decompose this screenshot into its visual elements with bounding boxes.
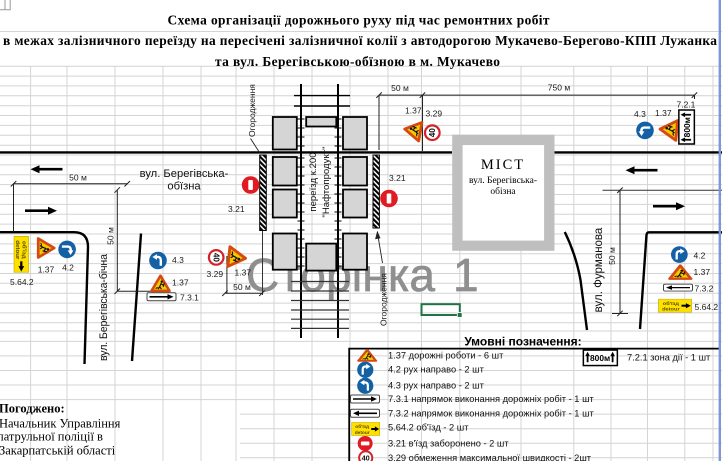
svg-text:3.21: 3.21	[389, 173, 406, 183]
svg-text:Схема організації дорожнього р: Схема організації дорожнього руху під ча…	[168, 13, 550, 28]
svg-text:50 м: 50 м	[69, 173, 87, 183]
svg-text:4.3 рух направо - 2 шт: 4.3 рух направо - 2 шт	[388, 381, 485, 391]
svg-text:вул. Берегівська-: вул. Берегівська-	[140, 168, 229, 180]
svg-text:вул. Фурманова: вул. Фурманова	[593, 227, 605, 312]
svg-text:750 м: 750 м	[548, 83, 571, 93]
svg-text:патрульної поліції в: патрульної поліції в	[0, 430, 103, 444]
svg-text:3.21: 3.21	[228, 204, 245, 214]
svg-text:Умовні позначення:: Умовні позначення:	[464, 335, 581, 349]
svg-text:Закарпатській області: Закарпатській області	[0, 444, 116, 458]
svg-text:"Нафтопродукт": "Нафтопродукт"	[321, 146, 332, 217]
svg-text:Огородження: Огородження	[379, 273, 389, 326]
svg-text:вул. Берегівська-: вул. Берегівська-	[469, 176, 537, 186]
svg-text:3.29 обмеження максимальної шв: 3.29 обмеження максимальної швидкості - …	[388, 453, 592, 461]
svg-text:1: 1	[453, 249, 479, 301]
svg-text:7.3.2 напрямок виконання дорож: 7.3.2 напрямок виконання дорожніх робіт …	[388, 409, 595, 419]
svg-text:7.3.1: 7.3.1	[180, 293, 199, 303]
svg-text:5.64.2: 5.64.2	[695, 302, 719, 312]
svg-text:1.37: 1.37	[655, 108, 672, 118]
svg-text:Погоджено:: Погоджено:	[0, 402, 65, 416]
svg-text:вул. Берегівська-бічна: вул. Берегівська-бічна	[98, 254, 110, 361]
svg-text:Огородження: Огородження	[247, 84, 257, 137]
svg-text:1.37: 1.37	[405, 106, 422, 116]
svg-text:4.2: 4.2	[62, 263, 74, 273]
svg-text:4.3: 4.3	[172, 255, 184, 265]
svg-text:4.2: 4.2	[694, 251, 706, 261]
svg-text:та вул. Берегівською-обїзною в: та вул. Берегівською-обїзною в м. Мукаче…	[215, 54, 500, 69]
svg-text:1.37: 1.37	[38, 265, 55, 275]
svg-text:50 м: 50 м	[106, 227, 116, 245]
svg-text:50 м: 50 м	[233, 282, 251, 292]
svg-text:МІСТ: МІСТ	[481, 157, 525, 173]
svg-text:50 м: 50 м	[607, 247, 617, 265]
svg-text:3.29: 3.29	[426, 109, 443, 119]
svg-text:в межах залізничного переїзду: в межах залізничного переїзду на пересіч…	[3, 33, 717, 48]
svg-text:3.29: 3.29	[207, 269, 224, 279]
svg-text:3.21 в'їзд заборонено - 2 шт: 3.21 в'їзд заборонено - 2 шт	[388, 439, 509, 449]
svg-text:7.2.1: 7.2.1	[677, 100, 696, 110]
svg-text:7.2.1 зона дії - 1 шт: 7.2.1 зона дії - 1 шт	[627, 353, 711, 363]
svg-text:обїзна: обїзна	[167, 181, 201, 193]
svg-text:Начальник Управління: Начальник Управління	[0, 417, 121, 431]
svg-text:обізна: обізна	[490, 186, 516, 197]
svg-text:5.64.2 об'їзд - 2 шт: 5.64.2 об'їзд - 2 шт	[388, 423, 469, 433]
svg-text:7.3.2: 7.3.2	[695, 284, 714, 294]
svg-text:4.3: 4.3	[634, 109, 646, 119]
svg-text:4.2 рух направо - 2 шт: 4.2 рух направо - 2 шт	[388, 365, 485, 375]
svg-text:1.37 дорожні роботи - 6 шт: 1.37 дорожні роботи - 6 шт	[388, 351, 504, 361]
svg-text:5.64.2: 5.64.2	[10, 277, 34, 287]
svg-text:1.37: 1.37	[172, 278, 189, 288]
svg-text:7.3.1 напрямок виконання дорож: 7.3.1 напрямок виконання дорожніх робіт …	[388, 394, 595, 404]
svg-text:переїзд к.200: переїзд к.200	[308, 152, 319, 211]
svg-text:1.37: 1.37	[235, 268, 252, 278]
svg-text:50 м: 50 м	[391, 83, 409, 93]
svg-text:1.37: 1.37	[694, 267, 711, 277]
